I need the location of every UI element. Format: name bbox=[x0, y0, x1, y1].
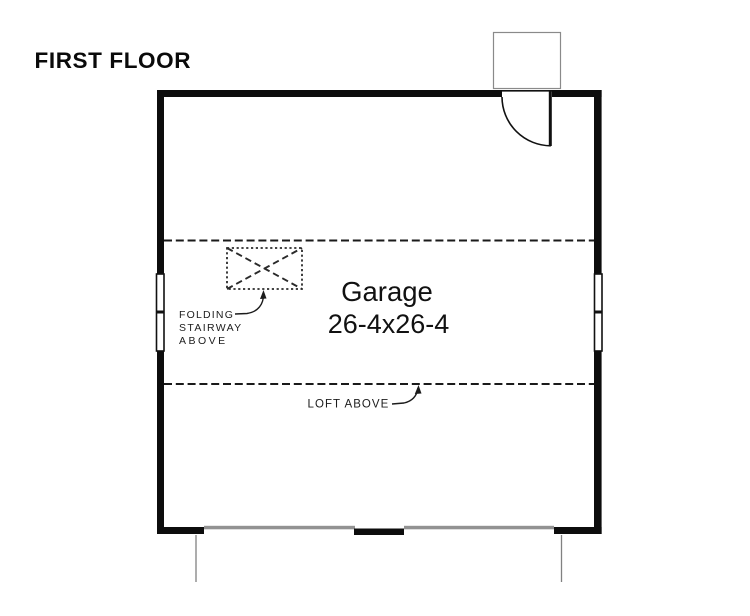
svg-text:LOFT ABOVE: LOFT ABOVE bbox=[308, 399, 390, 411]
svg-text:Garage: Garage bbox=[341, 276, 433, 307]
svg-text:FOLDING: FOLDING bbox=[179, 309, 234, 321]
svg-text:STAIRWAY: STAIRWAY bbox=[179, 322, 243, 334]
svg-text:ABOVE: ABOVE bbox=[179, 335, 228, 347]
svg-text:FIRST FLOOR: FIRST FLOOR bbox=[35, 48, 192, 73]
svg-text:26-4x26-4: 26-4x26-4 bbox=[328, 309, 450, 339]
